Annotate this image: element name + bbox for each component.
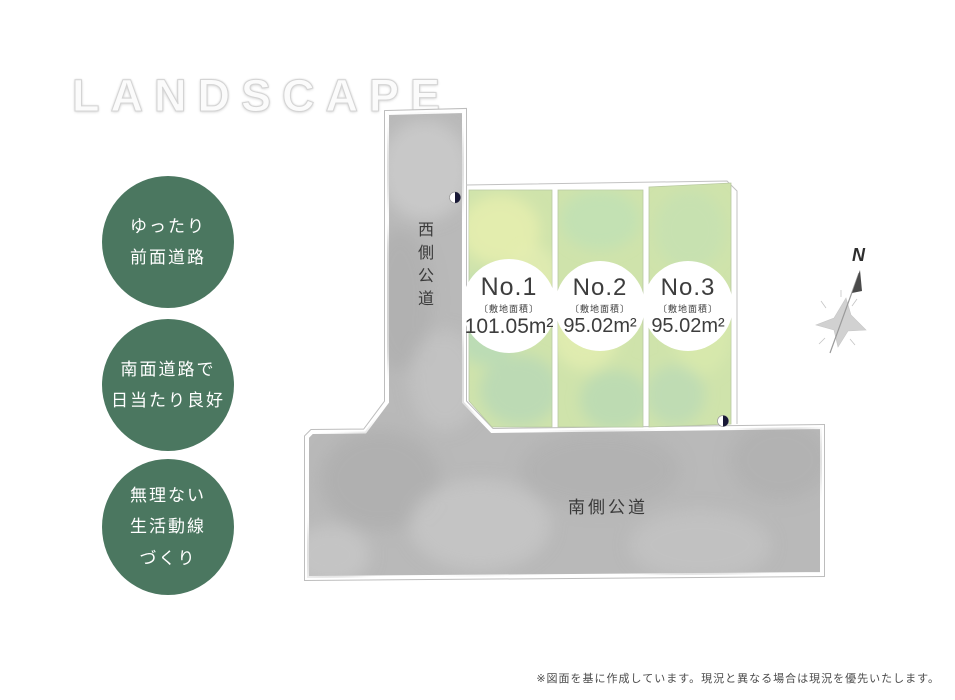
lot-area-label: 〔敷地面積〕 xyxy=(570,302,630,315)
compass-arrowhead xyxy=(852,270,862,293)
lot-badge-no2: No.2 〔敷地面積〕 95.02m² xyxy=(555,261,645,351)
site-plan xyxy=(0,0,955,700)
survey-marker-top xyxy=(450,192,461,203)
footer-disclaimer: ※図面を基に作成しています。現況と異なる場合は現況を優先いたします。 xyxy=(536,670,940,686)
lot-area-label: 〔敷地面積〕 xyxy=(658,302,718,315)
south-road-label: 南側公道 xyxy=(568,493,648,518)
lot-number: No.1 xyxy=(481,274,538,300)
lot-badge-no1: No.1 〔敷地面積〕 101.05m² xyxy=(462,259,556,353)
lot-area-value: 95.02m² xyxy=(651,316,724,337)
lot-number: No.2 xyxy=(573,275,628,300)
survey-marker-bottom xyxy=(718,416,729,427)
compass xyxy=(816,270,866,353)
compass-north-label: N xyxy=(852,245,865,266)
lot-area-value: 95.02m² xyxy=(563,316,636,337)
lot-number: No.3 xyxy=(661,275,716,300)
west-road-label: 西側公道 xyxy=(411,221,435,313)
lot-badge-no3: No.3 〔敷地面積〕 95.02m² xyxy=(643,261,733,351)
lot-area-label: 〔敷地面積〕 xyxy=(479,302,539,315)
lot-area-value: 101.05m² xyxy=(465,316,554,338)
compass-needle-line xyxy=(830,273,859,353)
